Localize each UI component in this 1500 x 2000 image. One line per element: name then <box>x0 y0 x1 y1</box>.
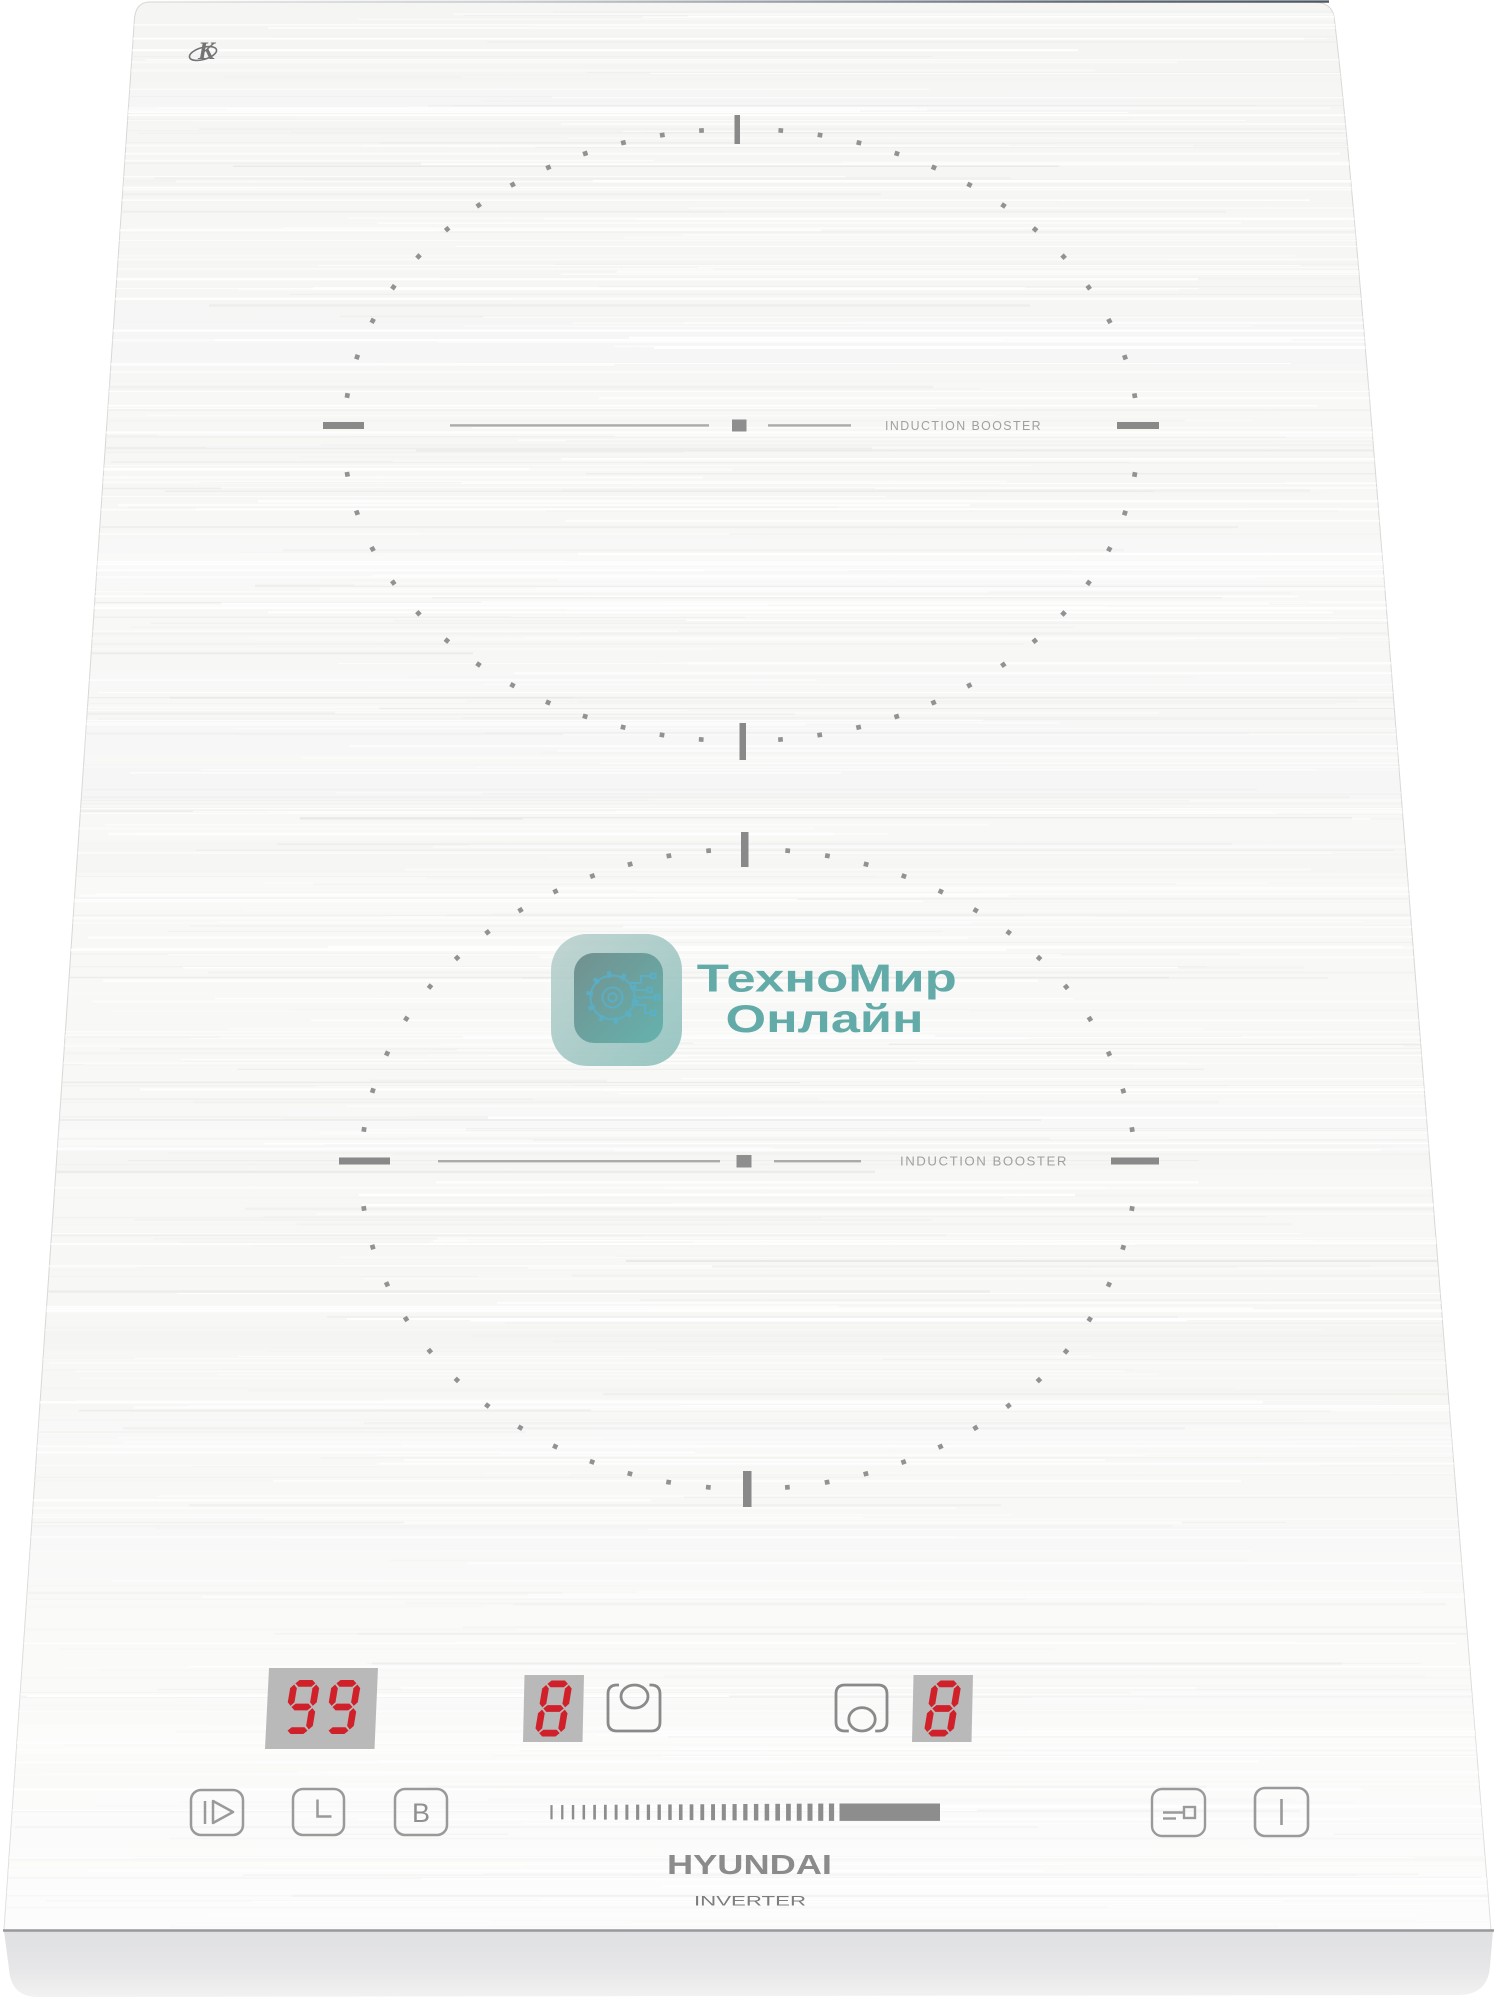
svg-text:Онлайн: Онлайн <box>726 998 924 1041</box>
svg-text:HYUNDAI: HYUNDAI <box>667 1849 832 1880</box>
svg-text:INDUCTION BOOSTER: INDUCTION BOOSTER <box>885 418 1042 433</box>
svg-text:INVERTER: INVERTER <box>694 1894 806 1909</box>
svg-text:B: B <box>412 1798 430 1828</box>
svg-text:ТехноМир: ТехноМир <box>697 958 957 1001</box>
svg-text:INDUCTION BOOSTER: INDUCTION BOOSTER <box>900 1154 1068 1169</box>
